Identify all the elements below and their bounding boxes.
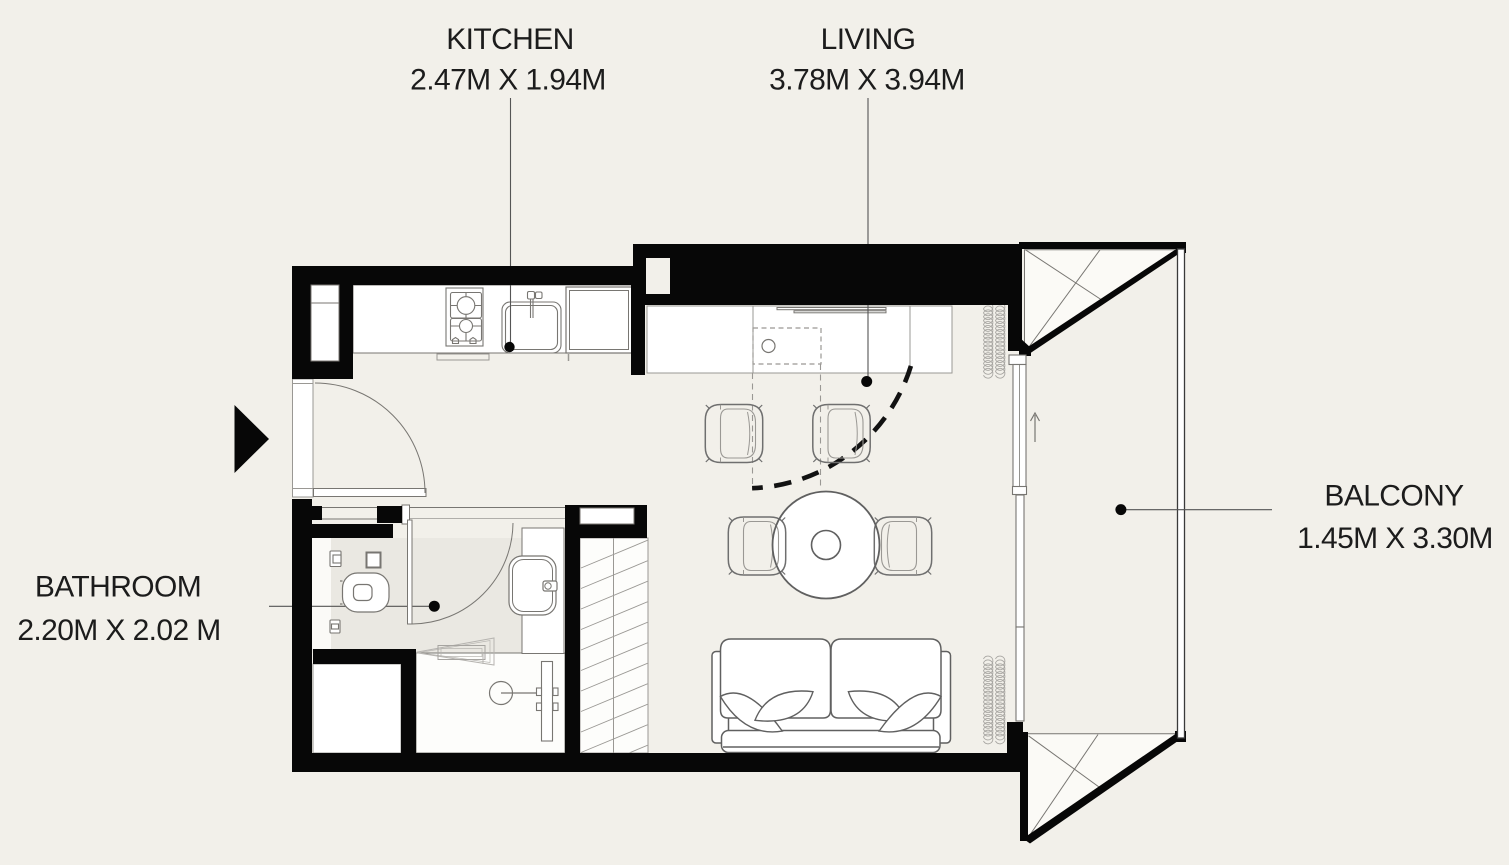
svg-text:1.45M X 3.30M: 1.45M X 3.30M [1297,522,1493,555]
svg-text:KITCHEN: KITCHEN [446,23,573,56]
svg-text:BATHROOM: BATHROOM [35,571,201,604]
svg-text:LIVING: LIVING [821,23,916,56]
svg-text:3.78M X 3.94M: 3.78M X 3.94M [769,64,965,97]
svg-text:BALCONY: BALCONY [1324,480,1464,513]
svg-text:2.20M X 2.02 M: 2.20M X 2.02 M [17,614,220,647]
svg-text:2.47M X 1.94M: 2.47M X 1.94M [410,64,606,97]
